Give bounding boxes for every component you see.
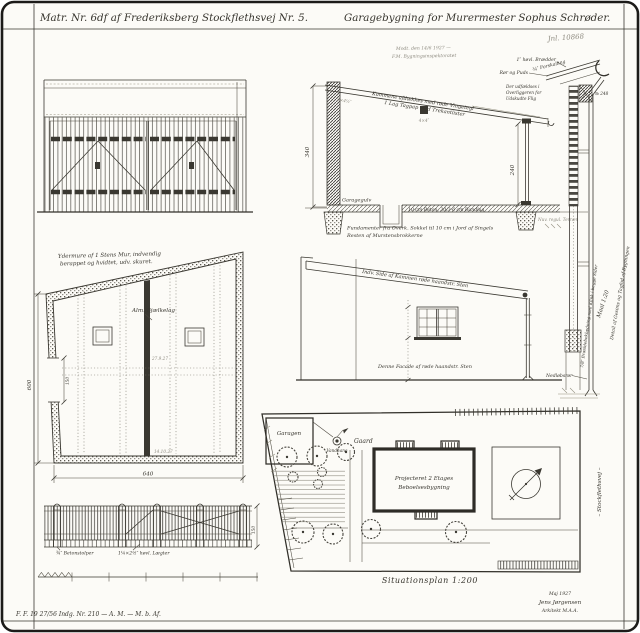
dim-label-600: 600 <box>27 379 33 390</box>
fence-base <box>44 540 252 547</box>
yard-label: Gaard <box>354 438 373 445</box>
building-label-2: Beboelsesbygning <box>397 485 450 491</box>
facade-note: Denne Facade af røde haandstr. Sten <box>377 364 472 370</box>
overhang-note-2: Overliggeren for <box>506 90 542 95</box>
plank-wall <box>45 118 247 212</box>
street-label: – Stockflethsvej – <box>597 467 603 516</box>
foundation-note-1: Fundamenter fra Overk. Sokkel til 10 cm … <box>346 226 494 232</box>
window-sill <box>414 337 461 340</box>
reed-note: Rør og Puds <box>499 70 529 76</box>
purlin-dim-note: 4×4″ <box>418 118 430 123</box>
fence-lath-note: 1¼×2½″ høvl. Lægter <box>118 550 170 557</box>
sill-block <box>565 330 581 352</box>
overhang-note-3: Udskudte Flig <box>506 96 536 101</box>
board-note: 1″ høvl. Brædder <box>517 57 557 63</box>
building-label-1: Projecteret 2 Etages <box>394 476 453 482</box>
sheet-title-left: Matr. Nr. 6df af Frederiksberg Stockflet… <box>39 12 308 24</box>
dim-label-640: 640 <box>143 472 154 478</box>
wall-strip <box>569 86 578 206</box>
pencil-note-1: Modt. den 14/6 1927 — <box>395 45 451 52</box>
inspection-pit <box>380 204 402 228</box>
architect-title: Arkitekt M.A.A. <box>541 608 579 614</box>
overhang-note-1: Der udfældses i <box>505 84 540 89</box>
fence-post-note: ¾″ Betonstolper <box>56 550 94 557</box>
plan-date-note-2: 14.10.27 <box>154 449 173 454</box>
number-note: № 248 <box>594 91 609 96</box>
downpipe-note: Nedløbsrør <box>545 373 573 379</box>
dim-label-150: 150 <box>65 377 70 385</box>
foundation-note-2: Resten af Murstensbrokkerne <box>346 233 423 239</box>
pencil-note-2: F.M. Bygningsinspektoratet <box>391 53 457 60</box>
site-plan-caption: Situationsplan 1:200 <box>382 576 478 585</box>
door-handle <box>189 162 194 169</box>
drawing-sheet: Matr. Nr. 6df af Frederiksberg Stockflet… <box>0 0 640 633</box>
floor-label: Garagegulv <box>342 198 372 204</box>
plan-date-note-1: 27.9.27 <box>151 356 168 361</box>
door-opening <box>47 358 59 402</box>
garden-bed <box>272 468 345 524</box>
registration-note: F. F. 19 27/56 Indg. Nr. 210 — A. M. — M… <box>15 611 161 618</box>
hedge-strip <box>498 561 578 569</box>
plan-beam-note: Alm. Bjælkelag <box>131 308 175 314</box>
garage-label: Garagen <box>277 431 302 437</box>
architect-signature: Jens Jørgensen <box>538 600 582 606</box>
terrain-note: Nuv. regul. Terræn <box>537 217 579 222</box>
sheet-title-right: Garagebygning for Murermester Sophus Sch… <box>344 12 610 24</box>
date-label: Maj 1927 <box>548 591 571 597</box>
fence-dim-label: 150 <box>251 526 256 534</box>
slab-note: 10 cm Beton, 30/3-6 cm Bundlag <box>408 207 484 213</box>
drawing-canvas: Matr. Nr. 6df af Frederiksberg Stockflet… <box>0 0 640 633</box>
door-handle <box>95 162 100 169</box>
foundation-left <box>324 212 343 234</box>
dim-label-340: 340 <box>305 146 311 157</box>
dim-label-240: 240 <box>510 164 516 176</box>
foundation-right <box>516 212 536 230</box>
